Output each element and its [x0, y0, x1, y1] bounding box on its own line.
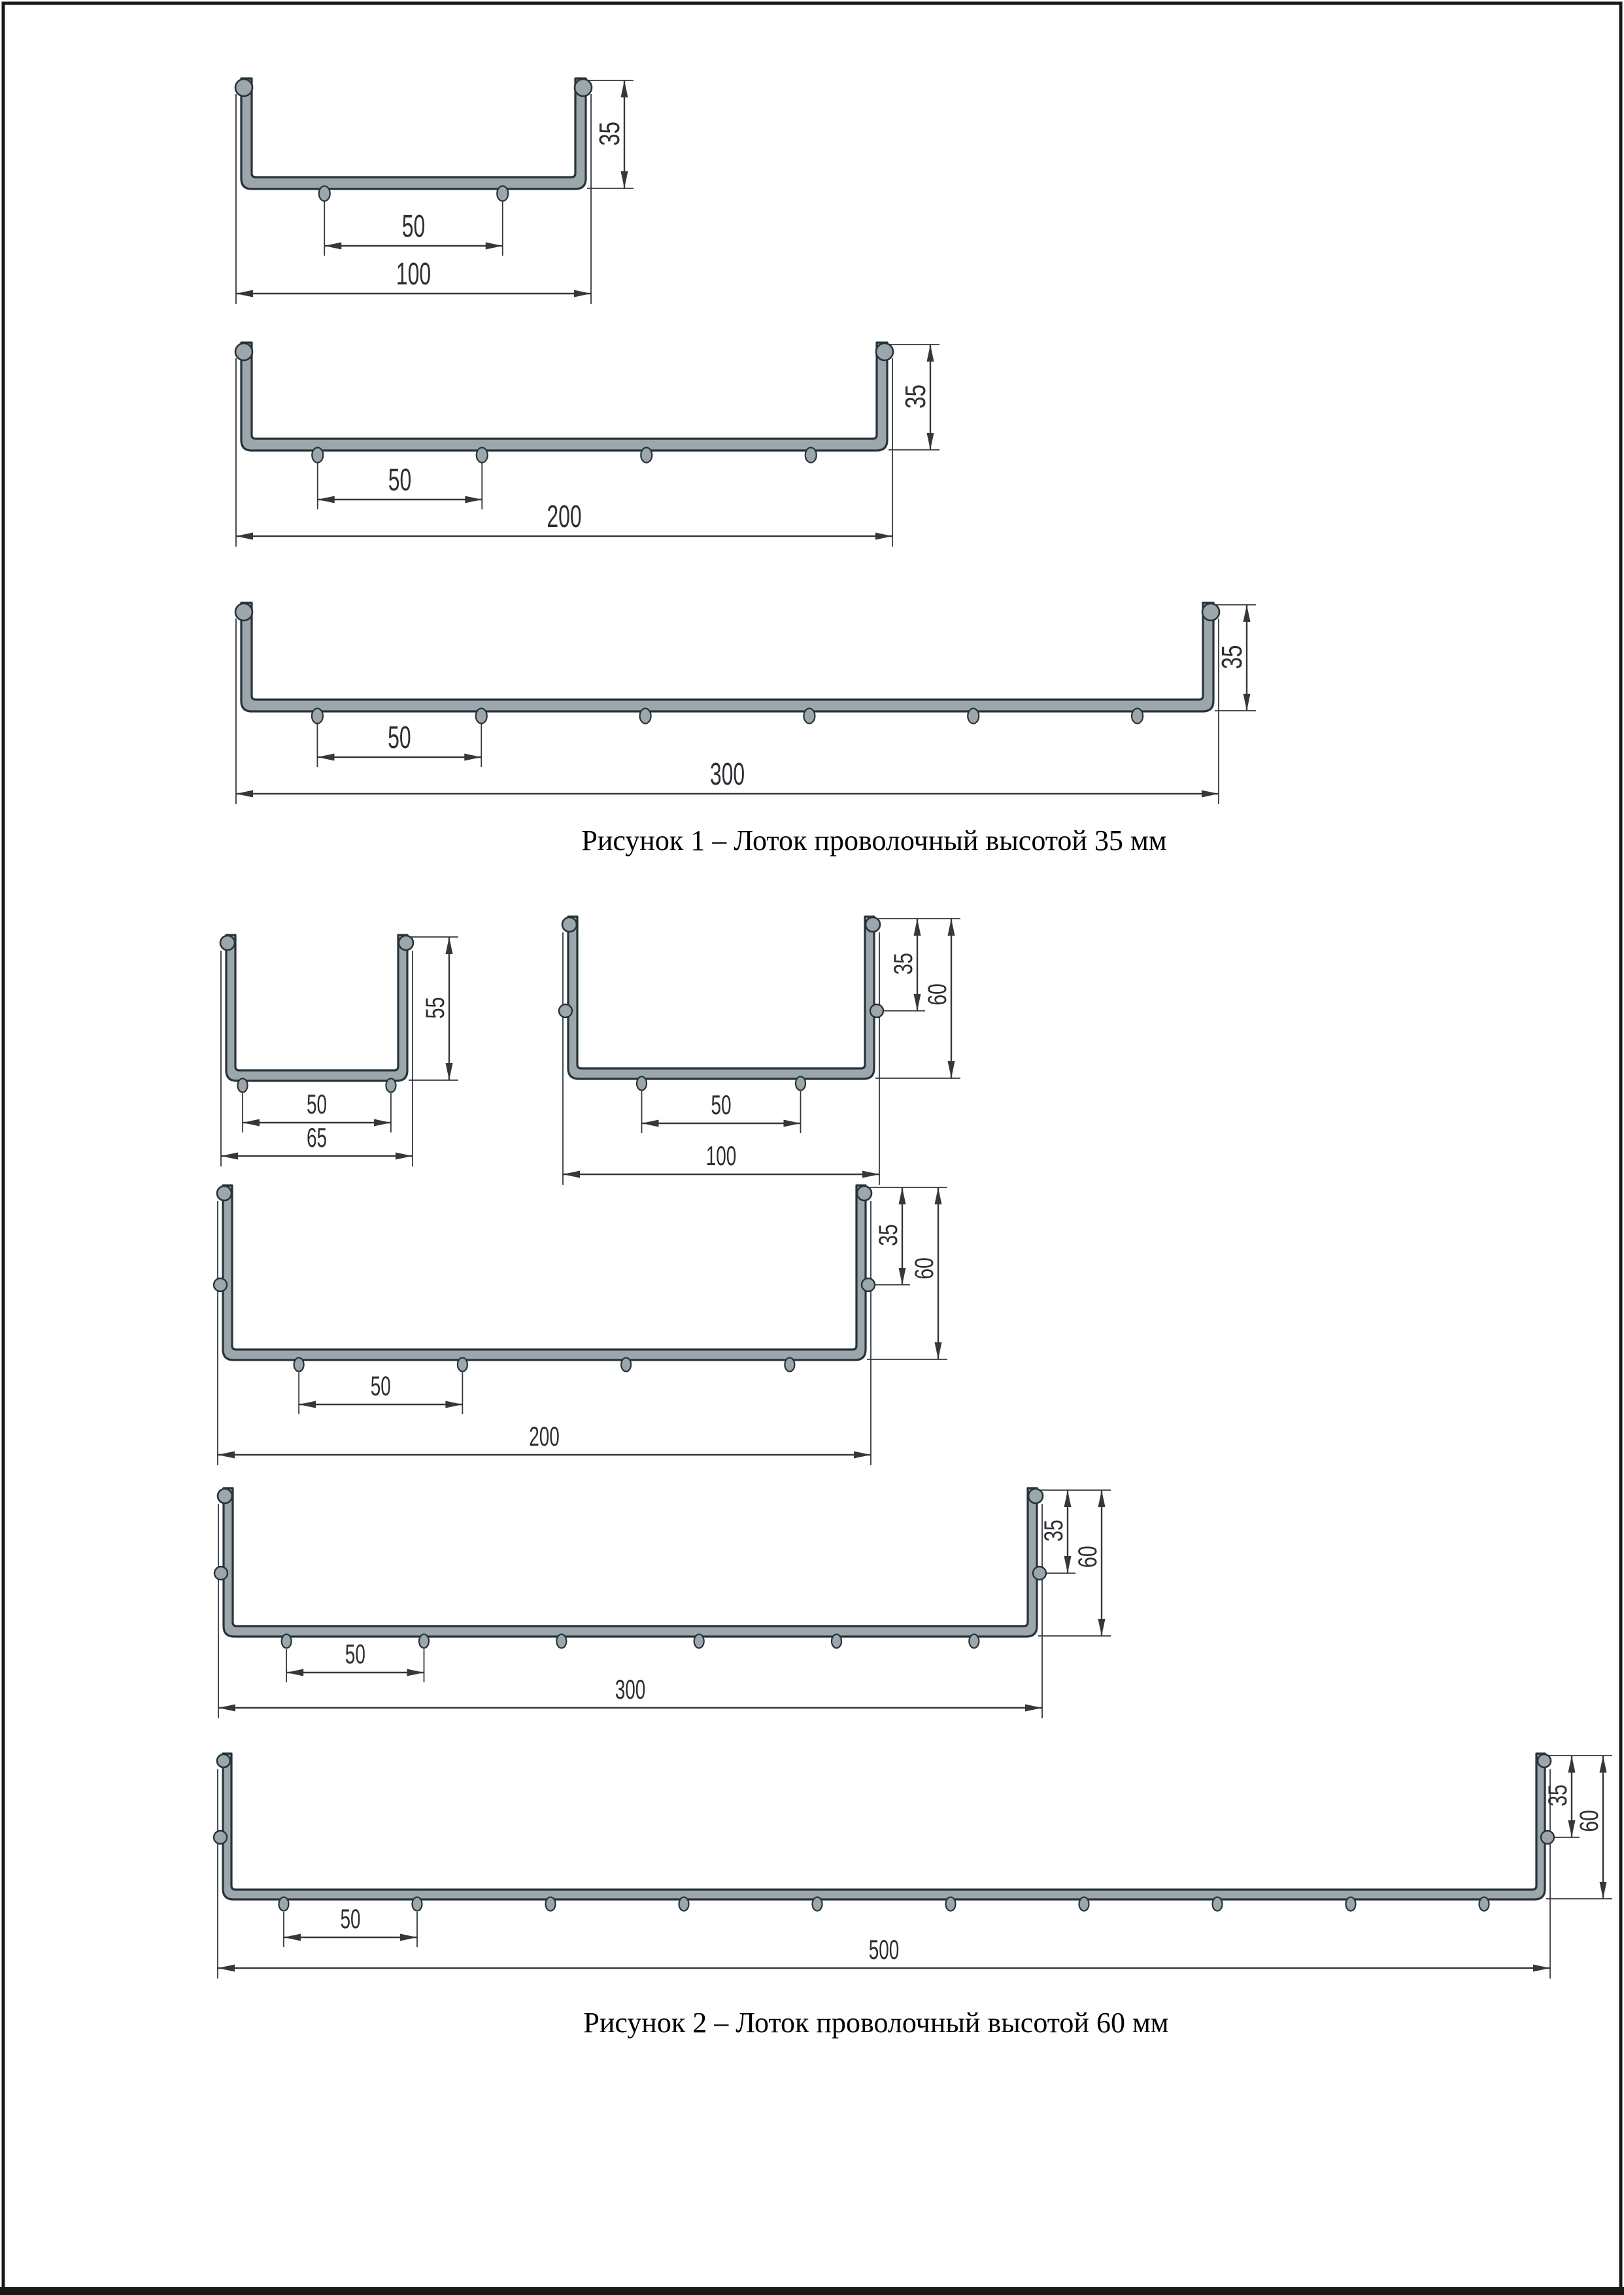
- dimension-arrow: [784, 1120, 801, 1127]
- bottom-wire: [1132, 709, 1143, 724]
- pitch-dimension-label: 50: [402, 209, 426, 244]
- height-dimension-label: 60: [910, 1257, 939, 1280]
- figure1-caption: Рисунок 1 – Лоток проволочный высотой 35…: [581, 824, 1166, 857]
- mid-height-dimension-label: 35: [1544, 1784, 1572, 1807]
- bottom-wire: [832, 1635, 841, 1648]
- bottom-wire: [796, 1077, 805, 1091]
- dimension-arrow: [948, 919, 955, 936]
- top-rim-wire: [857, 1186, 871, 1200]
- top-rim-wire: [562, 917, 577, 932]
- width-dimension-label: 300: [615, 1674, 646, 1705]
- tray-profile: [226, 935, 407, 1081]
- top-rim-wire: [220, 936, 235, 950]
- technical-drawing-canvas: 501003550200355030035 506555501003560502…: [0, 0, 1624, 2295]
- top-rim-wire: [217, 1186, 231, 1200]
- bottom-wire: [546, 1897, 556, 1911]
- pitch-dimension-label: 50: [388, 463, 412, 498]
- bottom-wire: [386, 1079, 396, 1093]
- dimension-arrow: [218, 1705, 235, 1712]
- dimension-arrow: [1600, 1882, 1607, 1899]
- dimension-arrow: [935, 1187, 942, 1204]
- dimension-arrow: [1568, 1756, 1576, 1773]
- top-rim-wire: [1202, 603, 1219, 620]
- mid-side-wire: [214, 1567, 228, 1580]
- dimension-arrow: [1098, 1619, 1106, 1636]
- dimension-arrow: [446, 937, 453, 954]
- dimension-arrow: [914, 994, 921, 1011]
- dimension-arrow: [400, 1934, 417, 1941]
- dimension-arrow: [914, 919, 921, 936]
- mid-height-dimension-label: 35: [889, 953, 918, 975]
- top-rim-wire: [1538, 1754, 1551, 1767]
- bottom-wire: [294, 1358, 304, 1372]
- tray-100x35: 5010035: [235, 78, 634, 304]
- dimension-arrow: [1098, 1490, 1106, 1507]
- bottom-wire: [785, 1358, 794, 1372]
- width-dimension-label: 65: [307, 1122, 327, 1153]
- dimension-arrow: [243, 1119, 260, 1127]
- dimension-arrow: [927, 345, 934, 362]
- height-dimension-label: 60: [923, 983, 952, 1006]
- dimension-arrow: [445, 1401, 462, 1408]
- pitch-dimension-label: 50: [307, 1089, 327, 1119]
- dimension-arrow: [286, 1669, 303, 1676]
- bottom-wire: [497, 186, 508, 201]
- height-dimension-label: 60: [1575, 1810, 1604, 1832]
- bottom-wire: [1079, 1897, 1089, 1911]
- dimension-arrow: [1064, 1490, 1072, 1507]
- dimension-arrow: [935, 1342, 942, 1359]
- bottom-wire: [282, 1635, 292, 1648]
- dimension-arrow: [854, 1452, 871, 1459]
- tray-100x60: 501003560: [559, 917, 960, 1185]
- height-dimension-label: 35: [900, 384, 932, 409]
- dimension-arrow: [236, 290, 253, 297]
- dimension-arrow: [318, 496, 335, 503]
- mid-height-dimension-label: 35: [874, 1224, 903, 1246]
- dimension-arrow: [317, 754, 334, 761]
- pitch-dimension-label: 50: [711, 1089, 731, 1120]
- dimension-arrow: [899, 1268, 906, 1285]
- bottom-wire: [679, 1897, 689, 1911]
- tray-profile: [223, 1185, 866, 1360]
- mid-side-wire: [214, 1831, 227, 1844]
- bottom-wire: [556, 1635, 566, 1648]
- dimension-arrow: [396, 1153, 413, 1160]
- dimension-arrow: [862, 1171, 879, 1178]
- dimension-arrow: [465, 496, 482, 503]
- bottom-wire: [640, 709, 651, 724]
- bottom-wire: [477, 448, 488, 463]
- top-rim-wire: [235, 343, 252, 360]
- width-dimension-label: 200: [547, 500, 581, 534]
- mid-side-wire: [214, 1278, 227, 1291]
- dimension-arrow: [407, 1669, 424, 1676]
- tray-200x60: 502003560: [214, 1185, 947, 1465]
- dimension-arrow: [563, 1171, 580, 1178]
- dimension-arrow: [218, 1965, 235, 1972]
- tray-profile: [224, 1488, 1037, 1637]
- bottom-wire: [641, 448, 652, 463]
- bottom-wire: [946, 1897, 956, 1911]
- bottom-wire: [413, 1897, 422, 1911]
- dimension-arrow: [899, 1187, 906, 1204]
- dimension-arrow: [927, 433, 934, 450]
- figure2-caption: Рисунок 2 – Лоток проволочный высотой 60…: [583, 2007, 1168, 2039]
- bottom-wire: [312, 709, 323, 724]
- mid-side-wire: [1541, 1831, 1554, 1844]
- dimension-arrow: [1025, 1705, 1042, 1712]
- bottom-wire: [458, 1358, 467, 1372]
- pitch-dimension-label: 50: [388, 721, 411, 755]
- tray-profile: [241, 343, 887, 450]
- dimension-arrow: [236, 533, 253, 540]
- bottom-wire: [968, 709, 979, 724]
- dimension-arrow: [324, 243, 341, 250]
- bottom-wire: [319, 186, 330, 201]
- tray-profile: [241, 78, 586, 189]
- height-dimension-label: 35: [1216, 645, 1248, 670]
- dimension-arrow: [1600, 1756, 1607, 1773]
- tray-65x55: 506555: [220, 935, 458, 1166]
- mid-height-dimension-label: 35: [1040, 1520, 1068, 1542]
- dimension-arrow: [1568, 1820, 1576, 1837]
- dimension-arrow: [299, 1401, 316, 1408]
- height-dimension-label: 60: [1074, 1546, 1102, 1568]
- dimension-arrow: [374, 1119, 391, 1127]
- drawing-page: 501003550200355030035 506555501003560502…: [0, 0, 1624, 2295]
- dimension-arrow: [1243, 605, 1251, 622]
- dimension-arrow: [446, 1063, 453, 1080]
- dimension-arrow: [221, 1153, 238, 1160]
- dimension-arrow: [1243, 694, 1251, 711]
- bottom-wire: [1213, 1897, 1223, 1911]
- bottom-wire: [637, 1077, 647, 1091]
- width-dimension-label: 300: [710, 757, 745, 792]
- tray-profile: [241, 603, 1213, 711]
- width-dimension-label: 100: [396, 257, 431, 292]
- tray-profile: [568, 917, 874, 1079]
- page-bottom-edge: [0, 2287, 1624, 2295]
- tray-200x35: 5020035: [235, 343, 939, 547]
- dimension-arrow: [948, 1061, 955, 1078]
- bottom-wire: [312, 448, 323, 463]
- bottom-wire: [238, 1079, 248, 1093]
- bottom-wire: [621, 1358, 631, 1372]
- bottom-wire: [694, 1635, 704, 1648]
- bottom-wire: [1346, 1897, 1356, 1911]
- tray-500x60: 505003560: [214, 1754, 1612, 1979]
- figure1-drawings: 501003550200355030035: [235, 78, 1256, 804]
- mid-side-wire: [862, 1278, 875, 1291]
- dimension-arrow: [574, 290, 591, 297]
- top-rim-wire: [399, 936, 413, 950]
- dimension-arrow: [621, 171, 628, 188]
- tray-300x35: 5030035: [235, 603, 1256, 804]
- width-dimension-label: 100: [706, 1140, 737, 1171]
- pitch-dimension-label: 50: [371, 1370, 391, 1401]
- pitch-dimension-label: 50: [345, 1639, 365, 1669]
- bottom-wire: [476, 709, 487, 724]
- dimension-arrow: [236, 790, 253, 798]
- bottom-wire: [1480, 1897, 1489, 1911]
- bottom-wire: [419, 1635, 429, 1648]
- dimension-arrow: [284, 1934, 301, 1941]
- top-rim-wire: [217, 1754, 230, 1767]
- top-rim-wire: [218, 1489, 232, 1503]
- dimension-arrow: [218, 1452, 235, 1459]
- mid-side-wire: [1033, 1567, 1046, 1580]
- figure2-drawings: 5065555010035605020035605030035605050035…: [214, 917, 1612, 1979]
- top-rim-wire: [235, 603, 252, 620]
- bottom-wire: [969, 1635, 979, 1648]
- bottom-wire: [813, 1897, 822, 1911]
- dimension-arrow: [875, 533, 892, 540]
- top-rim-wire: [235, 79, 252, 96]
- top-rim-wire: [575, 79, 592, 96]
- bottom-wire: [804, 709, 815, 724]
- top-rim-wire: [866, 917, 880, 932]
- mid-side-wire: [870, 1004, 883, 1017]
- dimension-arrow: [464, 754, 481, 761]
- dimension-arrow: [621, 80, 628, 97]
- height-dimension-label: 35: [594, 122, 626, 146]
- dimension-arrow: [1533, 1965, 1550, 1972]
- width-dimension-label: 500: [869, 1934, 900, 1965]
- dimension-arrow: [642, 1120, 659, 1127]
- dimension-arrow: [486, 243, 503, 250]
- bottom-wire: [805, 448, 817, 463]
- top-rim-wire: [876, 343, 893, 360]
- bottom-wire: [279, 1897, 289, 1911]
- mid-side-wire: [559, 1004, 572, 1017]
- tray-300x60: 503003560: [214, 1488, 1111, 1718]
- tray-profile: [223, 1754, 1545, 1899]
- top-rim-wire: [1028, 1489, 1043, 1503]
- width-dimension-label: 200: [529, 1421, 560, 1452]
- dimension-arrow: [1064, 1556, 1072, 1573]
- height-dimension-label: 55: [421, 997, 450, 1019]
- pitch-dimension-label: 50: [340, 1903, 360, 1934]
- dimension-arrow: [1202, 790, 1219, 798]
